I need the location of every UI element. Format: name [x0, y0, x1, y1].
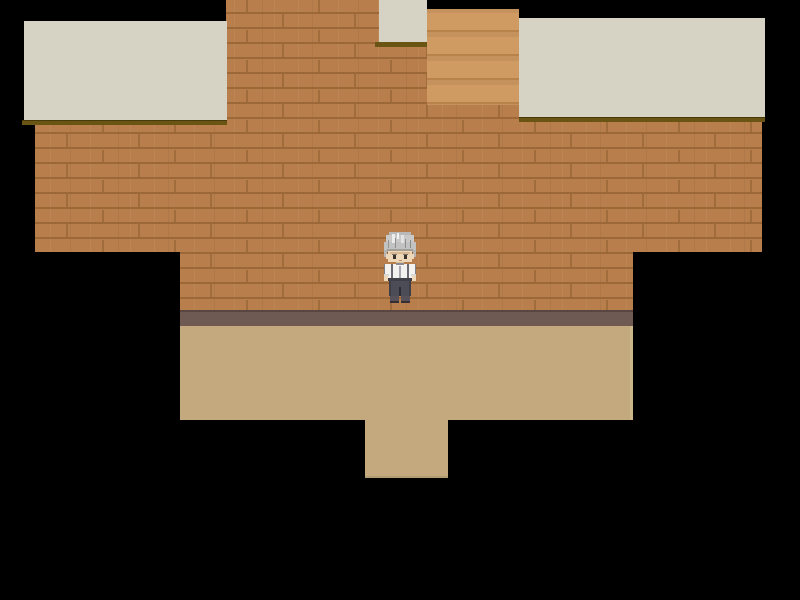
- hand-right: [412, 276, 416, 281]
- mouth: [399, 260, 402, 261]
- eye-left: [393, 255, 396, 259]
- shirt-placket: [399, 266, 401, 278]
- baseboard: [180, 310, 633, 326]
- suspender-left: [391, 264, 393, 278]
- ceiling-panel-right: [519, 18, 765, 117]
- hair-strand: [388, 240, 389, 248]
- wall-left-lower: [180, 252, 226, 310]
- pants-shade-right: [409, 281, 411, 296]
- ceiling-panel-left: [24, 21, 227, 120]
- hair-strand: [405, 239, 406, 248]
- eyebrow-left: [392, 254, 397, 255]
- hand-left: [384, 276, 388, 281]
- hair-mid: [386, 235, 414, 243]
- ear-left: [386, 254, 388, 259]
- pants-shade-left: [389, 281, 391, 296]
- cuff-right: [411, 274, 416, 276]
- ceiling-panel-top-center: [379, 0, 427, 42]
- hair-highlight: [397, 233, 399, 239]
- wall-right-lower: [519, 252, 633, 310]
- wall-below-door: [427, 105, 519, 310]
- hair-highlight: [401, 235, 404, 243]
- floor-right-edge-highlight: [630, 326, 633, 420]
- ceiling-panel-top-center-shadow: [375, 42, 427, 47]
- floor-extension-south[interactable]: [365, 420, 448, 478]
- wall-right-upper: [519, 122, 762, 252]
- hair-strand: [410, 240, 411, 248]
- eye-right: [404, 255, 407, 259]
- ear-right: [412, 254, 414, 259]
- floor-main[interactable]: [180, 326, 633, 420]
- bang-shadow: [390, 252, 410, 254]
- hair-highlight: [392, 234, 395, 243]
- door[interactable]: [427, 9, 519, 105]
- floor-extension-bottom-edge: [365, 476, 448, 478]
- wall-left-upper: [35, 125, 226, 252]
- hair-strand: [395, 238, 396, 248]
- belt: [388, 278, 412, 281]
- suspender-right: [407, 264, 409, 278]
- shoe-sole-left: [390, 301, 399, 303]
- collar: [396, 263, 404, 265]
- eyebrow-right: [403, 254, 408, 255]
- cuff-left: [384, 274, 389, 276]
- game-scene-canvas[interactable]: [0, 0, 800, 600]
- baseboard-strip: [180, 310, 633, 326]
- ceiling-panel-right-shadow-line: [519, 117, 765, 118]
- game-viewport[interactable]: [0, 0, 800, 600]
- shoe-sole-right: [401, 301, 410, 303]
- pants-leg-gap: [399, 287, 401, 296]
- baseboard-top-line: [180, 310, 633, 312]
- ceiling-panel-left-shadow-line: [22, 120, 227, 121]
